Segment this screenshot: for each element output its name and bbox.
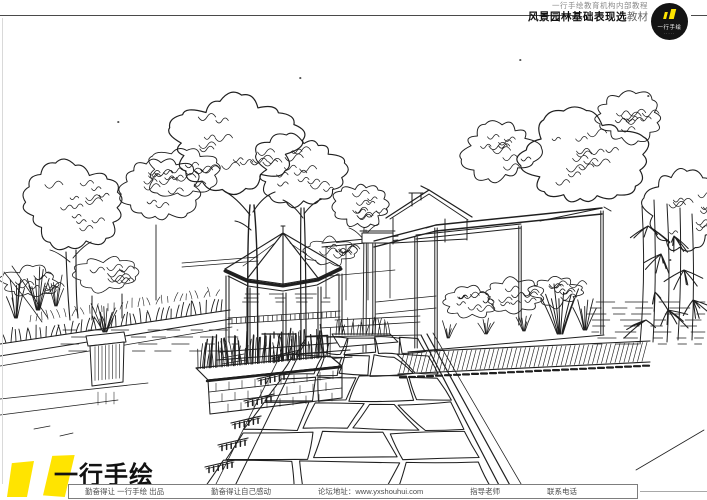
footer-rule-right [640,491,707,492]
textbook-page: 一行手绘教育机构内部教程 风景园林基础表现选教材 一行手绘 ····· 一行手绘… [0,0,707,500]
header-rule-right [691,15,707,16]
header-title: 风景园林基础表现选教材 [528,11,648,23]
footer-info-bar: 勤奋得让 一行手绘 出品 勤奋得让自己感动 论坛地址：www.yxshouhui… [68,484,638,499]
header-rule-left [0,15,577,16]
planters [86,304,398,414]
shrubs [443,276,597,338]
logo-strokes-icon [651,9,688,19]
rear-fence [182,236,398,300]
bamboo [587,200,707,344]
website-address: 论坛地址：www.yxshouhui.com [318,486,423,497]
teacher-label: 指导老师 [470,486,500,497]
production-credit: 勤奋得让 一行手绘 出品 [85,486,164,497]
slogan: 勤奋得让自己感动 [211,486,271,497]
canvas-left-edge [2,18,3,484]
website-url: www.yxshouhui.com [355,487,423,496]
header-text: 一行手绘教育机构内部教程 风景园林基础表现选教材 [528,2,648,23]
brand-logo-icon: 一行手绘 ····· [651,3,688,40]
deck [398,341,650,377]
pergola [373,207,611,352]
garden-sketch [0,0,707,500]
phone-label: 联系电话 [547,486,577,497]
header-subtitle: 一行手绘教育机构内部教程 [528,2,648,11]
